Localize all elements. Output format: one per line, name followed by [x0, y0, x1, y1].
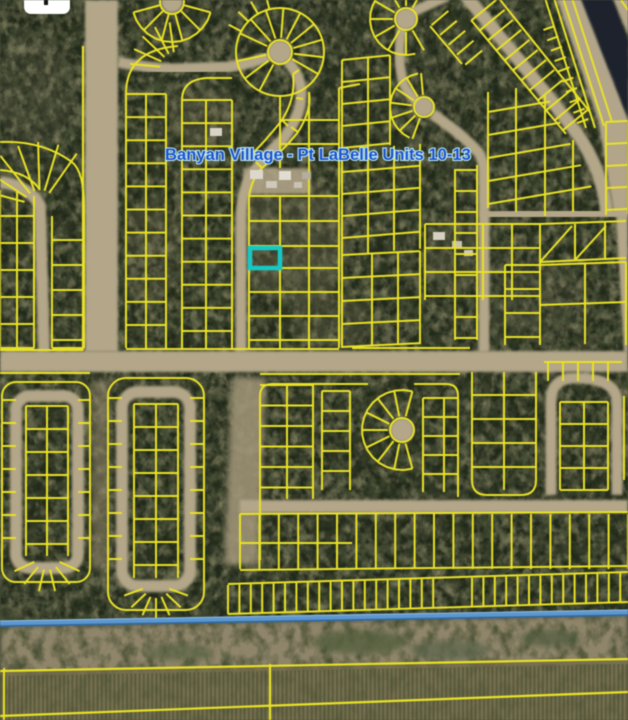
svg-text:Banyan Village - Pt LaBelle Un: Banyan Village - Pt LaBelle Units 10-13: [165, 145, 471, 164]
